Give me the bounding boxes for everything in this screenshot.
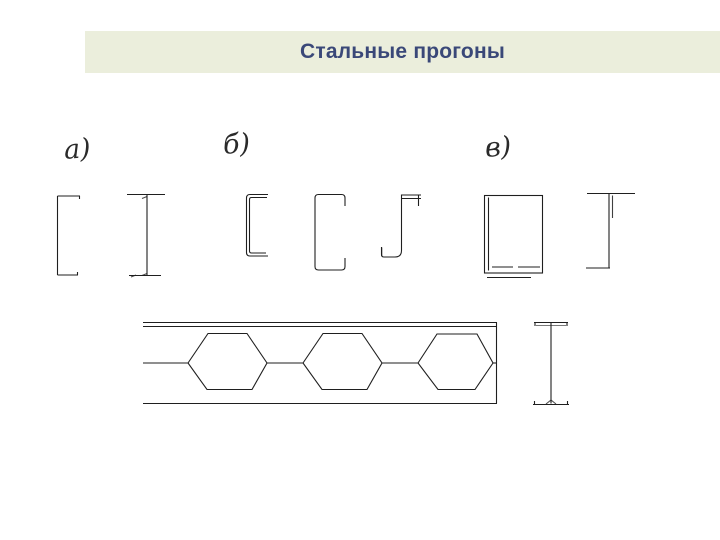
- slide: Стальные прогоны а) б) в): [0, 0, 720, 540]
- asymmetric-i-section-icon: [586, 194, 635, 269]
- hexagonal-opening: [303, 334, 382, 390]
- lipped-channel-icon: [315, 195, 345, 271]
- hexagonal-opening: [418, 334, 493, 390]
- i-beam-section-icon: [127, 195, 165, 278]
- zed-section-icon: [382, 195, 422, 257]
- steel-purlin-profiles-drawing: [0, 0, 720, 540]
- cold-formed-channel-icon: [247, 195, 269, 257]
- castellated-beam-elevation: [143, 323, 497, 404]
- castellated-beam-cross-section-icon: [533, 323, 569, 405]
- hexagonal-opening: [188, 334, 267, 390]
- channel-section-icon: [58, 196, 81, 275]
- box-section-icon: [485, 196, 543, 278]
